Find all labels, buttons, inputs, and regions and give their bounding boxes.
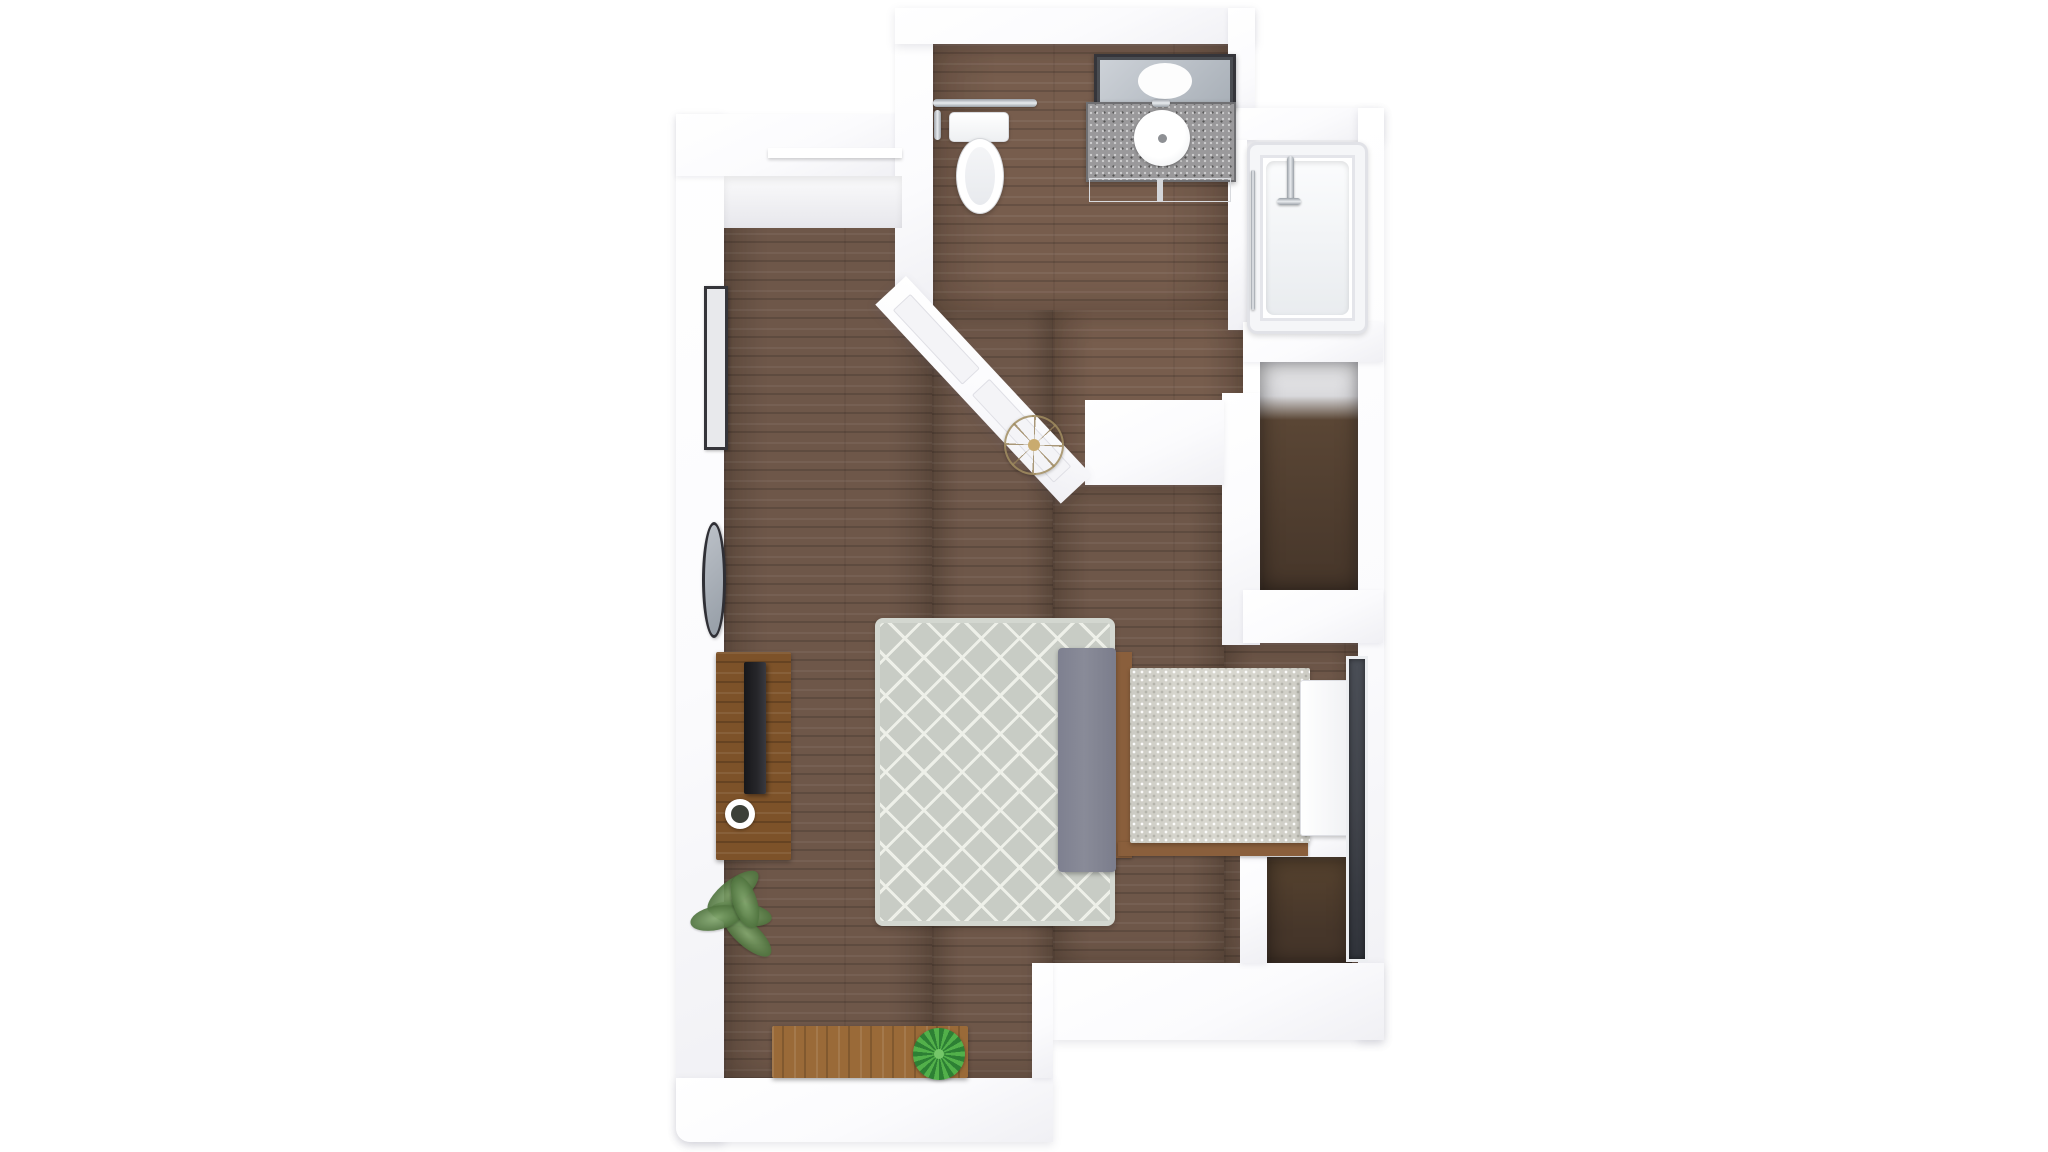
wall-art-frame: [704, 286, 728, 450]
sleeping-area-bottom-wall: [1053, 963, 1384, 1040]
bathtub-basin: [1266, 161, 1349, 315]
top-left-wall: [676, 114, 908, 176]
bedroom-window: [1346, 656, 1368, 962]
entry-closet-shelf: [768, 148, 902, 158]
grab-bar: [933, 99, 1037, 107]
sink-drain: [1158, 134, 1167, 143]
closet-bottom-wall: [1243, 590, 1383, 643]
lower-closet-floor: [1267, 857, 1352, 963]
tv-console: [716, 652, 791, 860]
fern-plant: [688, 862, 794, 968]
floorplan-render: [0, 0, 2048, 1152]
bed-mattress-bedding: [1130, 668, 1310, 843]
shower-rod: [1251, 170, 1255, 310]
toilet-bowl: [956, 138, 1004, 214]
vanity-mirror-reflection: [1138, 63, 1192, 99]
bathtub: [1247, 142, 1368, 334]
vanity-cabinet: [1089, 178, 1231, 202]
bottom-outer-wall: [676, 1078, 1053, 1142]
walk-in-closet-floor: [1260, 362, 1360, 590]
oval-wall-mirror: [702, 522, 726, 638]
tub-faucet-spout: [1277, 198, 1301, 205]
sink-faucet: [1152, 99, 1170, 107]
bottom-step-wall: [1032, 963, 1053, 1078]
toilet-supply-line: [934, 110, 941, 140]
entry-closet-recess: [724, 176, 902, 228]
bed-headboard: [1058, 648, 1116, 872]
bathroom-top-wall: [895, 8, 1255, 44]
mug: [725, 799, 755, 829]
hallway-bottom-wall: [1085, 400, 1224, 485]
bed-frame-foot: [1118, 842, 1308, 856]
tub-faucet-pipe: [1287, 156, 1294, 202]
pendant-light-fixture: [1004, 415, 1064, 475]
tv-screen: [744, 662, 766, 794]
succulent-plant: [913, 1028, 965, 1080]
